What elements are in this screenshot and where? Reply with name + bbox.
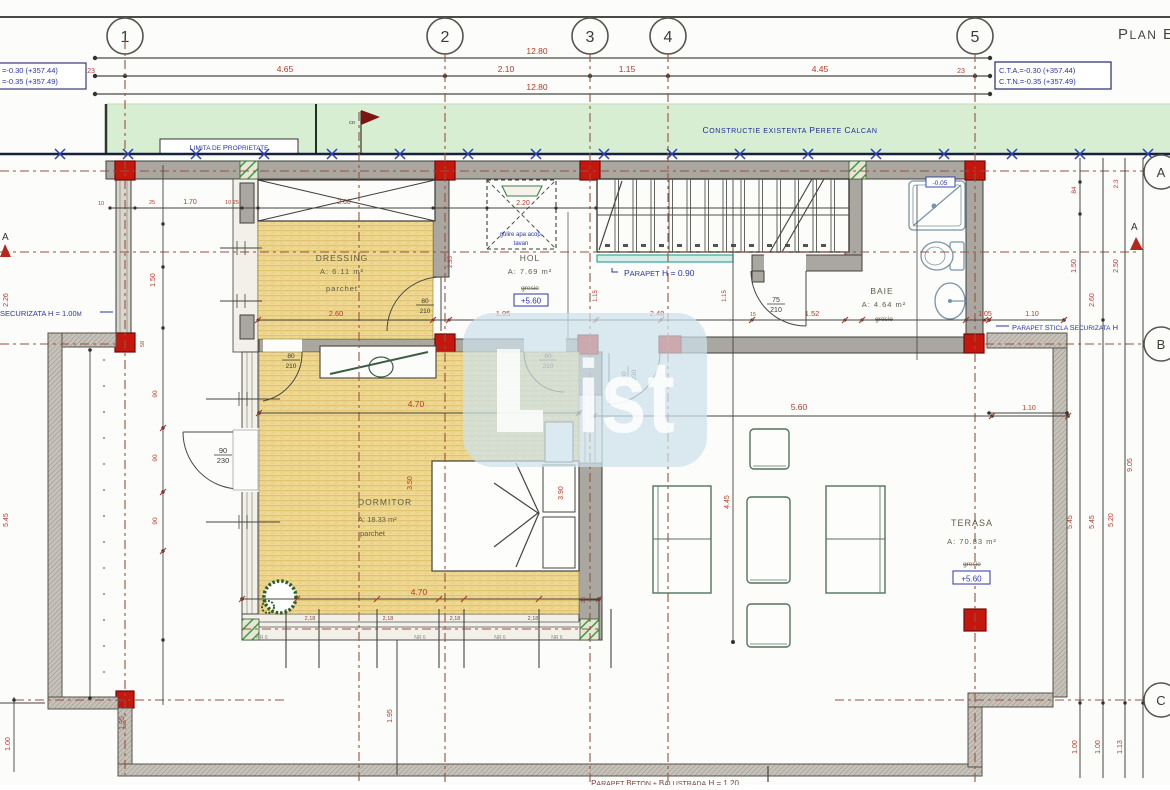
svg-text:DORMITOR: DORMITOR <box>358 497 412 507</box>
svg-text:58: 58 <box>140 341 146 347</box>
svg-text:1.50: 1.50 <box>150 273 157 287</box>
svg-text:A: A <box>1131 222 1138 233</box>
svg-text:80: 80 <box>421 298 429 305</box>
svg-text:NR 6: NR 6 <box>414 635 426 641</box>
svg-text:A: A <box>1157 165 1166 180</box>
svg-text:10: 10 <box>98 201 104 207</box>
svg-text:A: 7.69 m²: A: 7.69 m² <box>508 267 553 276</box>
svg-text:C.T.A.=-0.30 (+357.44): C.T.A.=-0.30 (+357.44) <box>999 66 1076 75</box>
svg-text:23: 23 <box>957 68 965 75</box>
svg-text:5.45: 5.45 <box>1089 515 1096 529</box>
svg-text:1.52: 1.52 <box>805 309 820 318</box>
svg-text:3.50: 3.50 <box>407 476 414 490</box>
svg-text:2,18: 2,18 <box>528 616 539 622</box>
svg-text:gresie: gresie <box>963 561 981 568</box>
svg-text:1.15: 1.15 <box>722 290 728 302</box>
svg-text:2.26: 2.26 <box>3 293 10 307</box>
svg-text:90: 90 <box>152 517 159 525</box>
svg-text:+5.60: +5.60 <box>521 297 542 306</box>
svg-text:1.10: 1.10 <box>1025 311 1039 318</box>
svg-text:5.20: 5.20 <box>1108 513 1115 527</box>
svg-text:=-0.35 (+357.49): =-0.35 (+357.49) <box>2 77 58 86</box>
svg-text:parchet: parchet <box>326 284 358 293</box>
svg-text:84: 84 <box>1071 186 1078 194</box>
svg-text:2.35: 2.35 <box>448 256 454 268</box>
svg-text:tavan: tavan <box>514 241 529 247</box>
svg-text:1.15: 1.15 <box>619 64 636 74</box>
svg-text:1.70: 1.70 <box>183 199 197 206</box>
svg-text:5: 5 <box>971 29 980 46</box>
svg-text:-0.05: -0.05 <box>933 180 948 187</box>
svg-text:A: A <box>2 232 9 243</box>
svg-text:2,18: 2,18 <box>305 616 316 622</box>
svg-text:gresie: gresie <box>521 285 539 292</box>
svg-text:9.05: 9.05 <box>1127 458 1134 472</box>
svg-text:26: 26 <box>581 597 587 603</box>
svg-text:NR 6: NR 6 <box>494 635 506 641</box>
svg-text:A: 18.33 m²: A: 18.33 m² <box>358 515 397 524</box>
svg-text:4.70: 4.70 <box>408 399 425 409</box>
svg-text:LIMITA DE PROPRIETATE: LIMITA DE PROPRIETATE <box>190 143 270 152</box>
svg-text:5.60: 5.60 <box>791 402 808 412</box>
svg-text:2.60: 2.60 <box>1089 293 1096 307</box>
svg-text:B: B <box>1157 337 1166 352</box>
svg-text:=-0.30 (+357.44): =-0.30 (+357.44) <box>2 66 58 75</box>
svg-text:PARAPET STICLA SECURIZATA H: PARAPET STICLA SECURIZATA H <box>1012 323 1118 332</box>
svg-text:golire apa acop.: golire apa acop. <box>500 232 543 238</box>
svg-text:10 25: 10 25 <box>225 200 239 206</box>
svg-text:1.05: 1.05 <box>978 311 992 318</box>
svg-text:3: 3 <box>586 29 595 46</box>
svg-text:4.45: 4.45 <box>724 495 731 509</box>
svg-text:4.70: 4.70 <box>411 587 428 597</box>
svg-text:12.80: 12.80 <box>526 82 548 92</box>
svg-text:23: 23 <box>87 68 95 75</box>
svg-text:2.60: 2.60 <box>337 199 351 206</box>
svg-text:230: 230 <box>217 456 230 465</box>
svg-text:C.T.N.=-0.35 (+357.49): C.T.N.=-0.35 (+357.49) <box>999 77 1076 86</box>
svg-text:2,18: 2,18 <box>383 616 394 622</box>
svg-text:12.80: 12.80 <box>526 46 548 56</box>
svg-text:HOL: HOL <box>520 253 540 263</box>
svg-text:A: 70.83 m²: A: 70.83 m² <box>947 537 997 546</box>
svg-text:C: C <box>1156 693 1165 708</box>
svg-text:90: 90 <box>152 390 159 398</box>
svg-text:PARAPET H = 0.90: PARAPET H = 0.90 <box>624 268 695 278</box>
svg-text:PLAN E: PLAN E <box>1118 26 1170 43</box>
svg-text:1.13: 1.13 <box>1117 740 1124 754</box>
svg-text:gresie: gresie <box>875 316 893 323</box>
svg-text:A: 4.64 m²: A: 4.64 m² <box>862 300 907 309</box>
svg-text:210: 210 <box>420 308 431 315</box>
svg-text:1.00: 1.00 <box>1072 740 1079 754</box>
svg-text:210: 210 <box>770 307 782 314</box>
svg-text:80: 80 <box>287 353 295 360</box>
svg-text:4.45: 4.45 <box>812 64 829 74</box>
svg-text:1.95: 1.95 <box>387 709 394 723</box>
svg-text:NR 6: NR 6 <box>551 635 563 641</box>
svg-text:2.10: 2.10 <box>498 64 515 74</box>
svg-text:ist: ist <box>577 339 676 454</box>
svg-text:NR 6: NR 6 <box>256 635 268 641</box>
svg-text:90: 90 <box>152 454 159 462</box>
svg-text:parchet: parchet <box>360 529 386 538</box>
svg-text:1.50: 1.50 <box>1071 259 1078 273</box>
svg-text:5.45: 5.45 <box>1067 515 1074 529</box>
svg-text:25: 25 <box>149 200 155 206</box>
svg-text:75: 75 <box>772 297 780 304</box>
svg-text:BAIE: BAIE <box>870 286 893 296</box>
svg-text:2,18: 2,18 <box>450 616 461 622</box>
svg-text:4: 4 <box>664 29 673 46</box>
svg-text:4.65: 4.65 <box>277 64 294 74</box>
svg-text:SECURIZATA H = 1.00M: SECURIZATA H = 1.00M <box>0 309 82 318</box>
svg-text:+5.60: +5.60 <box>961 575 982 584</box>
svg-text:5.45: 5.45 <box>3 513 10 527</box>
svg-text:1.95: 1.95 <box>119 716 126 730</box>
svg-text:90: 90 <box>219 446 227 455</box>
svg-text:1.10: 1.10 <box>1022 405 1036 412</box>
svg-text:1.00: 1.00 <box>5 737 12 751</box>
svg-text:1.00: 1.00 <box>1095 740 1102 754</box>
svg-text:co: co <box>349 120 355 126</box>
svg-text:15: 15 <box>750 312 756 318</box>
svg-text:2.50: 2.50 <box>1113 259 1120 273</box>
svg-text:210: 210 <box>286 363 297 370</box>
svg-text:2.3: 2.3 <box>1113 179 1120 188</box>
svg-text:2: 2 <box>441 29 450 46</box>
svg-text:DRESSING: DRESSING <box>316 253 368 263</box>
svg-text:A: 6.11 m²: A: 6.11 m² <box>320 267 364 276</box>
svg-text:3.90: 3.90 <box>558 486 565 500</box>
svg-text:2.20: 2.20 <box>516 200 530 207</box>
svg-text:1.15: 1.15 <box>593 290 599 302</box>
svg-text:2.60: 2.60 <box>329 309 344 318</box>
svg-text:TERASA: TERASA <box>951 518 993 528</box>
